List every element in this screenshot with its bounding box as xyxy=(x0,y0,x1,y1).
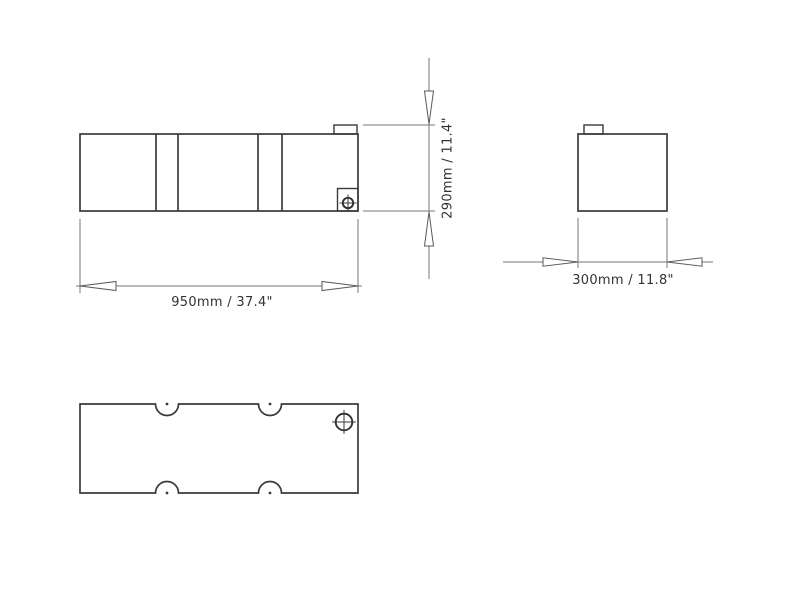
arrowhead-up xyxy=(425,212,434,246)
height-dimension: 290mm / 11.4" xyxy=(363,58,456,279)
arrowhead-right xyxy=(543,258,578,266)
top-view xyxy=(80,403,358,495)
filler-cap-side xyxy=(584,125,603,134)
height-dimension-label: 290mm / 11.4" xyxy=(441,117,456,219)
depth-dimension-label: 300mm / 11.8" xyxy=(572,273,674,288)
notch-center-dot xyxy=(166,492,169,495)
top-fitting-icon xyxy=(332,410,356,434)
drain-fitting-icon xyxy=(340,195,357,212)
front-view-outline xyxy=(80,134,358,211)
arrowhead-left xyxy=(667,258,702,266)
arrowhead-right xyxy=(322,282,358,291)
front-view xyxy=(80,125,358,212)
length-dimension-label: 950mm / 37.4" xyxy=(171,295,273,310)
notch-center-dot xyxy=(269,403,272,406)
notch-center-dot xyxy=(269,492,272,495)
tank-technical-drawing: 290mm / 11.4" 950mm / 37.4" 300mm / 11.8… xyxy=(0,0,800,600)
length-dimension: 950mm / 37.4" xyxy=(76,219,362,310)
top-view-outline xyxy=(80,404,358,493)
notch-center-dot xyxy=(166,403,169,406)
arrowhead-down xyxy=(425,91,434,124)
drawing-canvas: 290mm / 11.4" 950mm / 37.4" 300mm / 11.8… xyxy=(0,0,800,600)
side-view-outline xyxy=(578,134,667,211)
arrowhead-left xyxy=(80,282,116,291)
filler-cap-front xyxy=(334,125,357,134)
side-view xyxy=(578,125,667,211)
depth-dimension: 300mm / 11.8" xyxy=(503,218,713,288)
